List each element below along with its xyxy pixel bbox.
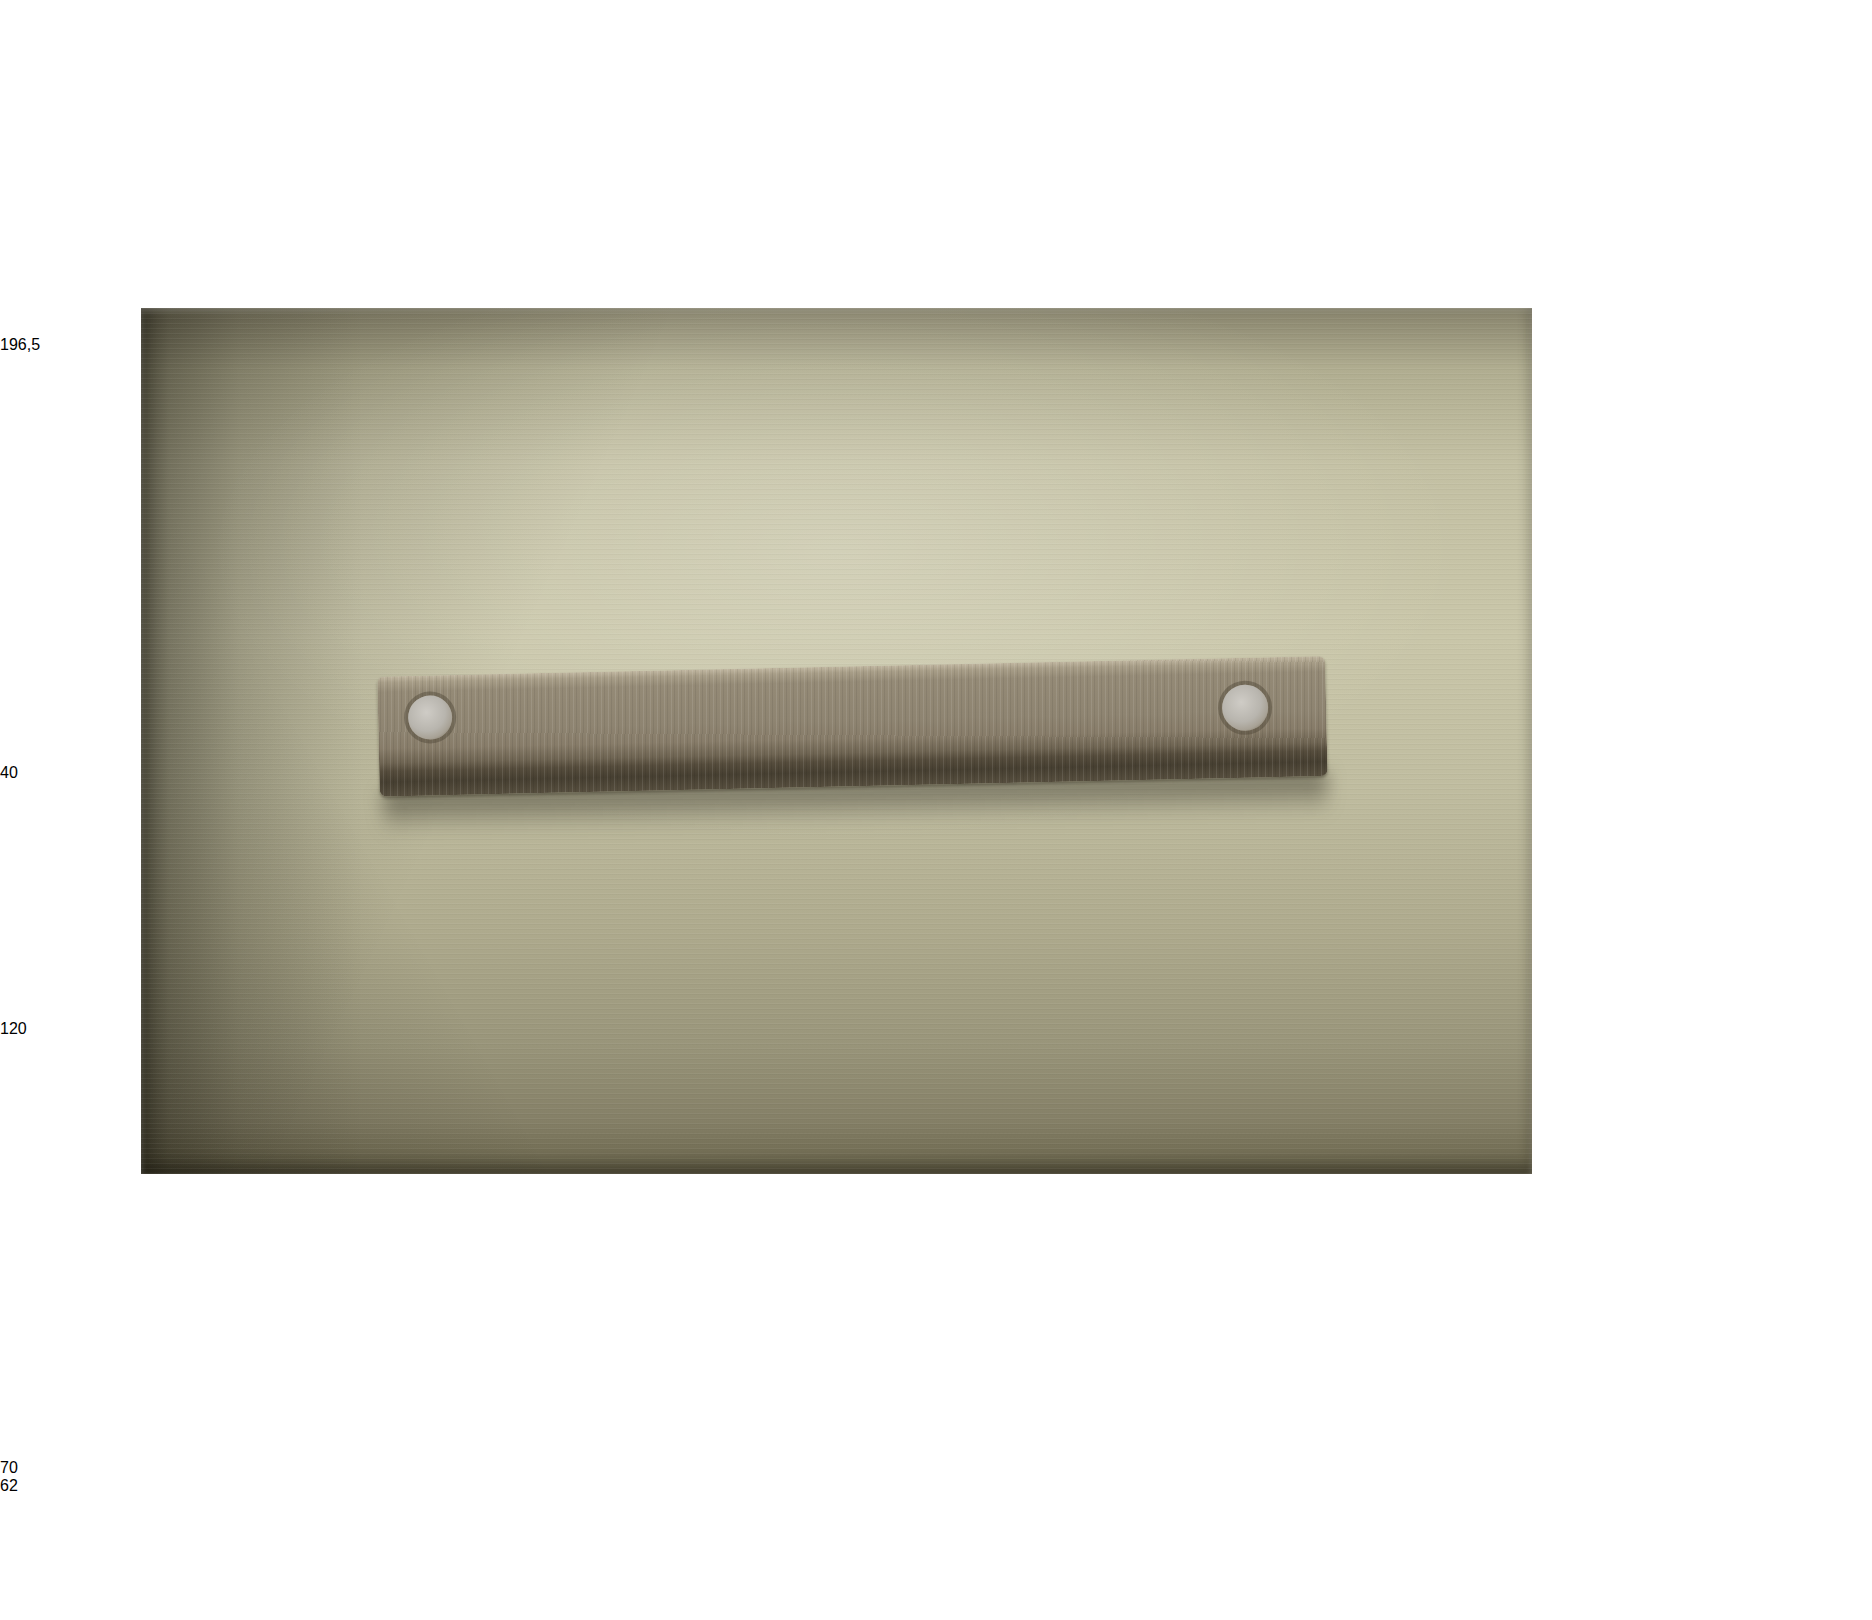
mounting-bar	[377, 656, 1327, 797]
technical-drawing: 196,5 40 120 70 62 51 120 2 отв.М8 х 1,2…	[0, 0, 1872, 1620]
rivet-right	[1222, 684, 1269, 731]
dim-line-bar-top-offset	[0, 1495, 1872, 1620]
ext-line-left	[0, 0, 1872, 168]
dim-label-hole-spacing: 70	[0, 1459, 1872, 1477]
threaded-hole-left	[528, 703, 581, 762]
rivet-left	[408, 695, 453, 740]
ext-line-hole-right-lower	[0, 1301, 1872, 1459]
threaded-hole-right	[1093, 690, 1150, 751]
dim-label-hole-right-offset: 62	[0, 1477, 1872, 1495]
ext-line-hole-right-upper	[0, 1177, 1872, 1301]
